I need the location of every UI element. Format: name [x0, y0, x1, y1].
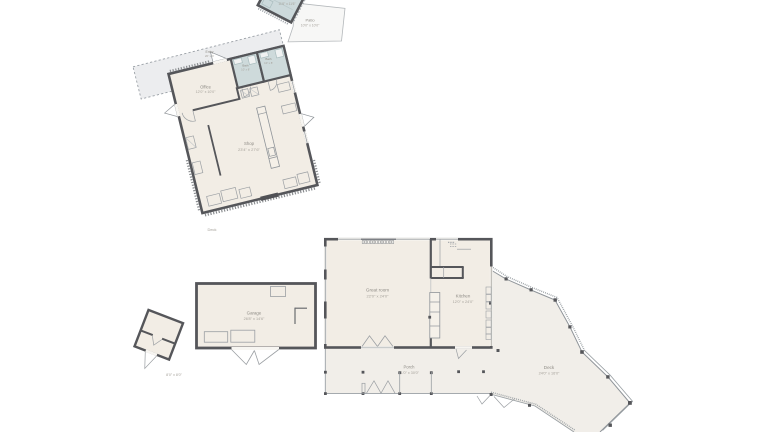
svg-text:10'0" x 10'0": 10'0" x 10'0" [301, 24, 320, 28]
svg-text:Office: Office [200, 85, 212, 90]
svg-text:Porch: Porch [404, 365, 416, 370]
svg-text:Great room: Great room [366, 288, 389, 293]
svg-text:Kitchen: Kitchen [456, 294, 471, 299]
svg-text:12'0" x 24'0": 12'0" x 24'0" [453, 300, 474, 304]
svg-text:Deck: Deck [207, 227, 216, 232]
svg-text:24'0" x 16'0": 24'0" x 16'0" [539, 372, 560, 376]
svg-text:23'4" x 27'6": 23'4" x 27'6" [238, 147, 261, 152]
svg-text:11'0" x 30'0": 11'0" x 30'0" [399, 371, 420, 375]
svg-text:10' x 8': 10' x 8' [241, 68, 250, 72]
svg-text:8'0" x 8'0": 8'0" x 8'0" [166, 373, 182, 377]
svg-text:20' x 4': 20' x 4' [205, 54, 215, 58]
svg-text:11'6" x 11'6": 11'6" x 11'6" [278, 2, 295, 6]
svg-text:Deck: Deck [544, 365, 555, 370]
svg-text:12'0" x 10'0": 12'0" x 10'0" [196, 90, 216, 94]
svg-text:Patio: Patio [305, 18, 315, 23]
svg-text:22'0" x 24'0": 22'0" x 24'0" [367, 294, 390, 299]
svg-text:10' x 8': 10' x 8' [264, 61, 273, 65]
svg-text:Shop: Shop [244, 141, 255, 146]
svg-text:Garage: Garage [247, 311, 262, 316]
svg-text:26'8" x 14'6": 26'8" x 14'6" [244, 317, 265, 321]
